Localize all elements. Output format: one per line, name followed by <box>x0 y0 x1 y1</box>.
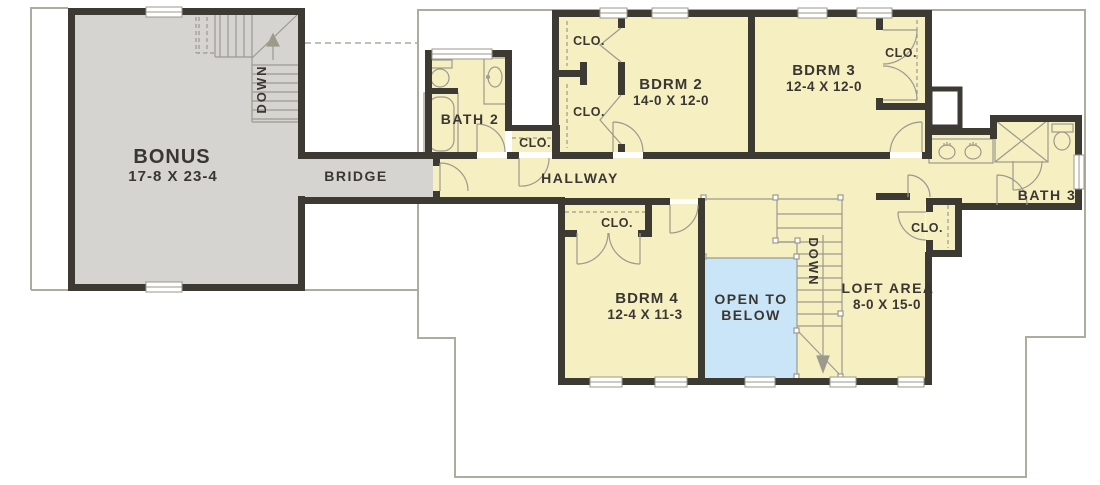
window <box>830 377 856 387</box>
bath3-wall-south <box>955 203 1082 210</box>
bdrm4-closet-stub-w <box>558 230 577 237</box>
hall-closet-label: CLO. <box>519 136 551 150</box>
bonus-dims: 17-8 X 23-4 <box>128 168 217 185</box>
hallwall-3 <box>552 152 613 159</box>
bonus-wall-bottom <box>68 284 305 291</box>
bridge-wall-north <box>298 152 428 159</box>
corridor-south-stub <box>876 193 910 200</box>
bridge-wall-south <box>298 197 438 204</box>
bdrm2-closet-upper-label: CLO. <box>573 34 605 48</box>
window <box>745 377 775 387</box>
window <box>600 8 627 18</box>
bdrm2-closet-lower-label: CLO. <box>573 105 605 119</box>
hall-closet-wall-east <box>553 131 560 152</box>
bonus-wall-right-lower <box>298 196 305 291</box>
bonus-label: BONUS <box>133 146 210 168</box>
bonus-stair-down-label: DOWN <box>254 64 269 113</box>
wall-bdrm3-closet-south <box>876 103 932 110</box>
floor-plan: BONUS 17-8 X 23-4 BRIDGE BATH 2 CLO. CLO… <box>0 0 1100 485</box>
wall-bdrm2-bdrm3 <box>748 17 755 152</box>
bath3-label: BATH 3 <box>1018 187 1077 203</box>
bedrooms-floor <box>552 17 925 152</box>
main-stair-down-label: DOWN <box>806 237 821 286</box>
window <box>655 377 687 387</box>
open-below-label-2: BELOW <box>721 307 781 323</box>
window <box>590 377 622 387</box>
hallwall-6 <box>922 152 932 159</box>
bonus-wall-top <box>68 8 305 15</box>
wall-closet-stub3 <box>618 144 625 152</box>
window <box>798 8 827 18</box>
hallway-label: HALLWAY <box>541 170 619 186</box>
hallwall-4 <box>643 152 755 159</box>
loft-closet-west-stub1 <box>926 198 933 212</box>
roof-left-wing <box>31 8 68 290</box>
open-below-label-1: OPEN TO <box>714 291 787 307</box>
hallway-floor <box>433 158 932 199</box>
loft-dims: 8-0 X 15-0 <box>853 297 921 312</box>
mechanical-chase <box>930 89 960 127</box>
hallwall-2 <box>507 152 519 159</box>
bath3-wall-north <box>990 115 1082 122</box>
window <box>857 8 892 18</box>
wall-closet-stub2 <box>618 62 625 95</box>
bonus-wall-left <box>68 8 75 291</box>
bath2-tub-stub <box>425 88 458 94</box>
bdrm3-closet-label: CLO. <box>885 46 917 60</box>
bath2-wall-east <box>505 57 512 131</box>
bdrm3-label: BDRM 3 <box>792 62 856 79</box>
bonus-wall-right-upper <box>298 8 305 159</box>
loft-closet-west-stub2 <box>926 240 933 257</box>
hallway-south-wall <box>433 197 565 204</box>
wall-closet-divider-cap <box>580 62 587 85</box>
loft-wall-east <box>925 252 932 385</box>
wall-closet-stub1 <box>618 17 625 28</box>
bath2-label: BATH 2 <box>441 111 500 127</box>
window <box>432 49 492 59</box>
hallwall-1 <box>425 152 477 159</box>
window <box>1074 155 1084 189</box>
bdrm2-dims: 14-0 X 12-0 <box>633 93 709 108</box>
floor-plan-drawing: BONUS 17-8 X 23-4 BRIDGE BATH 2 CLO. CLO… <box>0 0 1100 485</box>
bdrm2-label: BDRM 2 <box>639 76 703 93</box>
wall-bdrm3-closet-stub1 <box>876 17 883 30</box>
window <box>898 377 924 387</box>
bdrm4-dims: 12-4 X 11-3 <box>607 307 682 322</box>
loft-label: LOFT AREA <box>841 280 934 296</box>
loft-closet-label: CLO. <box>911 221 943 235</box>
bath3-wall-west-stub <box>990 115 997 139</box>
hallwall-5 <box>755 152 890 159</box>
bdrm3-dims: 12-4 X 12-0 <box>786 79 862 94</box>
bdrm4-wall-north <box>558 198 670 205</box>
hall-west-stub-top <box>433 159 440 166</box>
hall-closet-wall-north <box>505 125 560 131</box>
bdrm4-label: BDRM 4 <box>615 290 679 307</box>
bath2-wall-west <box>425 50 432 159</box>
window <box>146 7 182 17</box>
bridge-label: BRIDGE <box>324 168 387 184</box>
bdrm4-wall-west <box>558 197 565 385</box>
window <box>652 8 688 18</box>
window <box>146 282 182 292</box>
bdrm4-closet-label: CLO. <box>601 216 633 230</box>
bdrm4-wall-east <box>698 198 705 385</box>
